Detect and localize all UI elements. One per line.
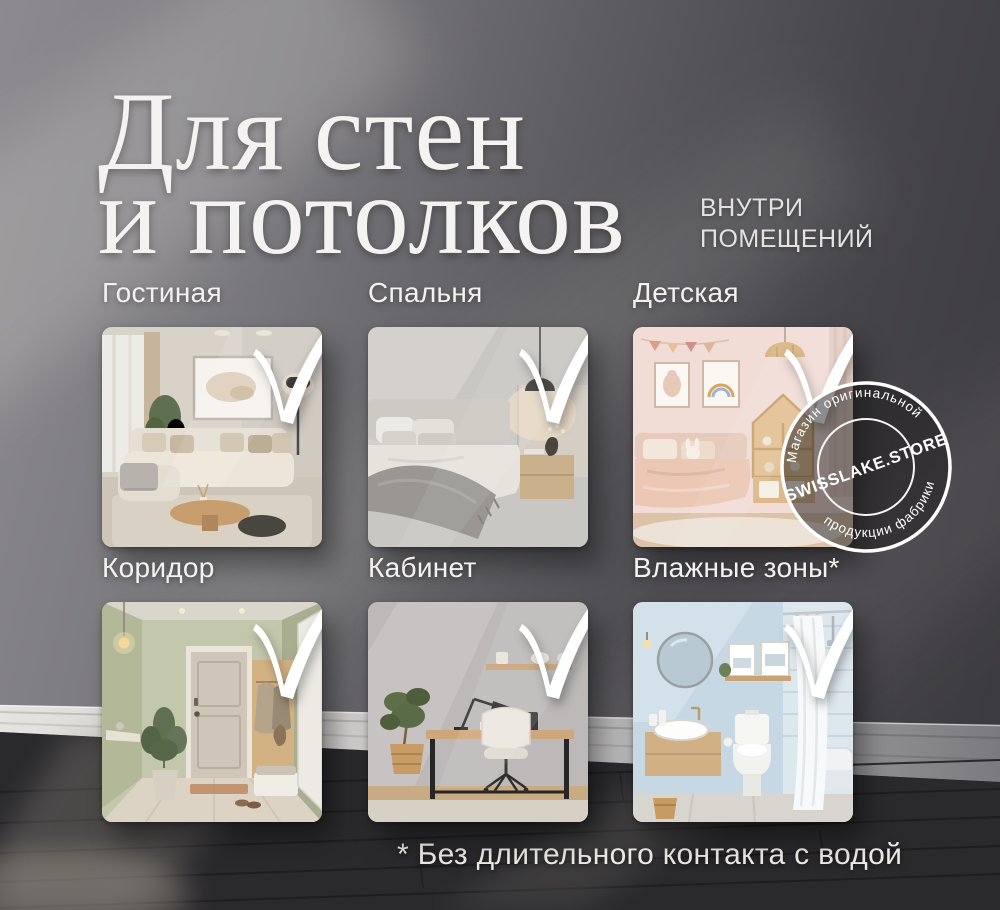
brand-badge: Магазин оригинальной продукции фабрики S… — [776, 377, 956, 557]
photo-corridor — [102, 602, 322, 822]
page-title: Для стен и потолков — [98, 90, 626, 258]
subtitle-line-1: ВНУТРИ — [700, 193, 874, 224]
section-office: Кабинет — [368, 602, 588, 822]
subtitle-line-2: ПОМЕЩЕНИЙ — [700, 224, 874, 255]
photo-bathroom — [633, 602, 853, 822]
section-corridor: Коридор — [102, 602, 322, 822]
section-bedroom: Спальня — [368, 327, 588, 547]
checkmark-icon — [250, 327, 322, 427]
section-living-room: Гостиная — [102, 327, 322, 547]
photo-living-room — [102, 327, 322, 547]
section-label: Гостиная — [102, 277, 222, 309]
photo-bedroom — [368, 327, 588, 547]
title-line-2: и потолков — [98, 174, 626, 258]
subtitle: ВНУТРИ ПОМЕЩЕНИЙ — [700, 193, 874, 255]
poster: Для стен и потолков ВНУТРИ ПОМЕЩЕНИЙ Гос… — [0, 0, 1000, 910]
photo-office — [368, 602, 588, 822]
checkmark-icon — [516, 602, 588, 702]
section-label: Коридор — [102, 552, 215, 584]
checkmark-icon — [781, 602, 853, 702]
section-label: Детская — [633, 277, 739, 309]
checkmark-icon — [250, 602, 322, 702]
checkmark-icon — [516, 327, 588, 427]
section-label: Спальня — [368, 277, 483, 309]
section-wet-zones: Влажные зоны* — [633, 602, 853, 822]
section-label: Кабинет — [368, 552, 477, 584]
footnote: * Без длительного контакта с водой — [397, 838, 902, 872]
